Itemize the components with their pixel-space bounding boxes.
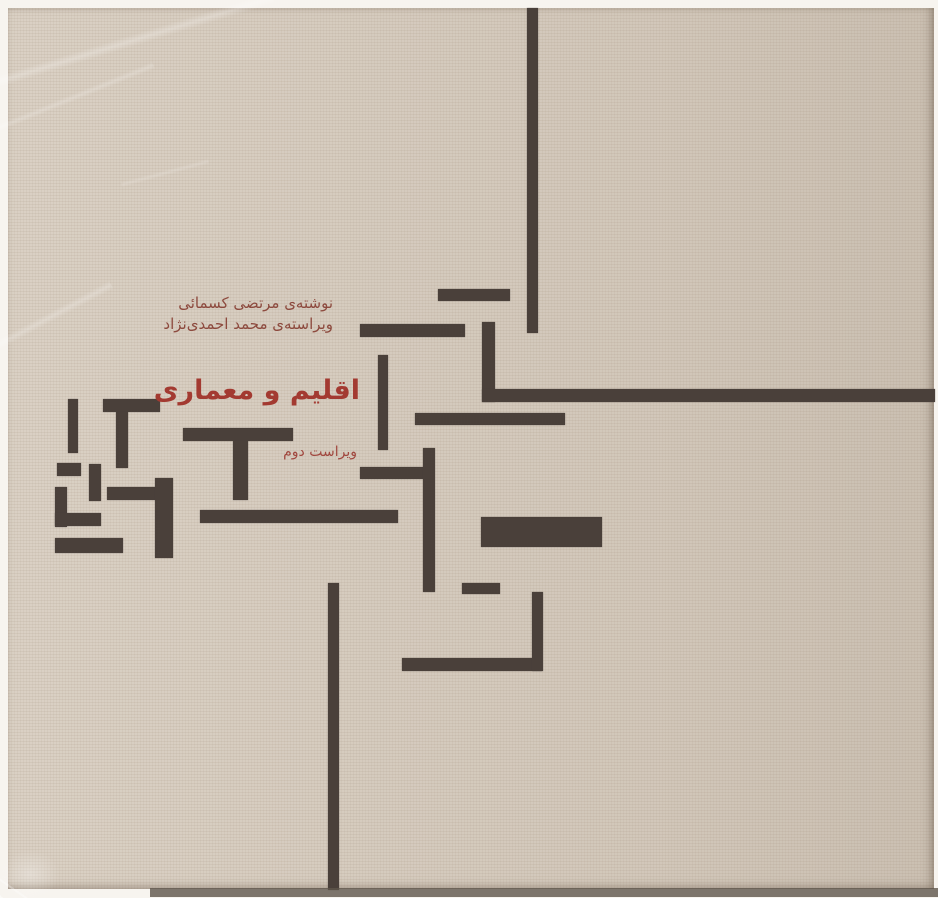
plan-bar	[55, 513, 101, 526]
book-cover-photo: نوشته‌ی مرتضی کسمائی ویراسته‌ی محمد احمد…	[0, 0, 938, 898]
plan-bar	[378, 355, 388, 450]
plan-bar	[57, 463, 81, 476]
author-credit: نوشته‌ی مرتضی کسمائی	[163, 293, 333, 314]
editor-credit: ویراسته‌ی محمد احمدی‌نژاد	[163, 314, 333, 335]
photo-edge-shadow	[150, 888, 938, 897]
plan-bar	[155, 478, 173, 558]
plan-bar	[89, 464, 101, 501]
plan-pattern	[0, 0, 938, 898]
plan-bar	[482, 389, 935, 402]
book-title: اقلیم و معماری	[154, 375, 360, 406]
plan-bar	[116, 412, 128, 468]
plan-bar	[183, 428, 293, 441]
plan-bar	[527, 8, 538, 333]
plan-bar	[360, 324, 465, 337]
plan-bar	[423, 448, 435, 592]
plan-bar	[402, 658, 542, 671]
edition-label: ویراست دوم	[283, 444, 357, 460]
plan-bar	[107, 487, 157, 500]
plan-bar	[103, 399, 160, 412]
plan-bar	[68, 399, 78, 453]
plan-bar	[481, 517, 602, 547]
plan-bar	[55, 538, 123, 553]
plan-bar	[233, 441, 248, 500]
plan-bar	[200, 510, 398, 523]
plan-bar	[360, 467, 428, 479]
plan-bar	[532, 592, 543, 671]
plan-bar	[462, 583, 500, 594]
plan-bar	[438, 289, 510, 301]
plan-bar	[415, 413, 565, 425]
byline-block: نوشته‌ی مرتضی کسمائی ویراسته‌ی محمد احمد…	[163, 293, 333, 335]
plan-bar	[328, 583, 339, 890]
